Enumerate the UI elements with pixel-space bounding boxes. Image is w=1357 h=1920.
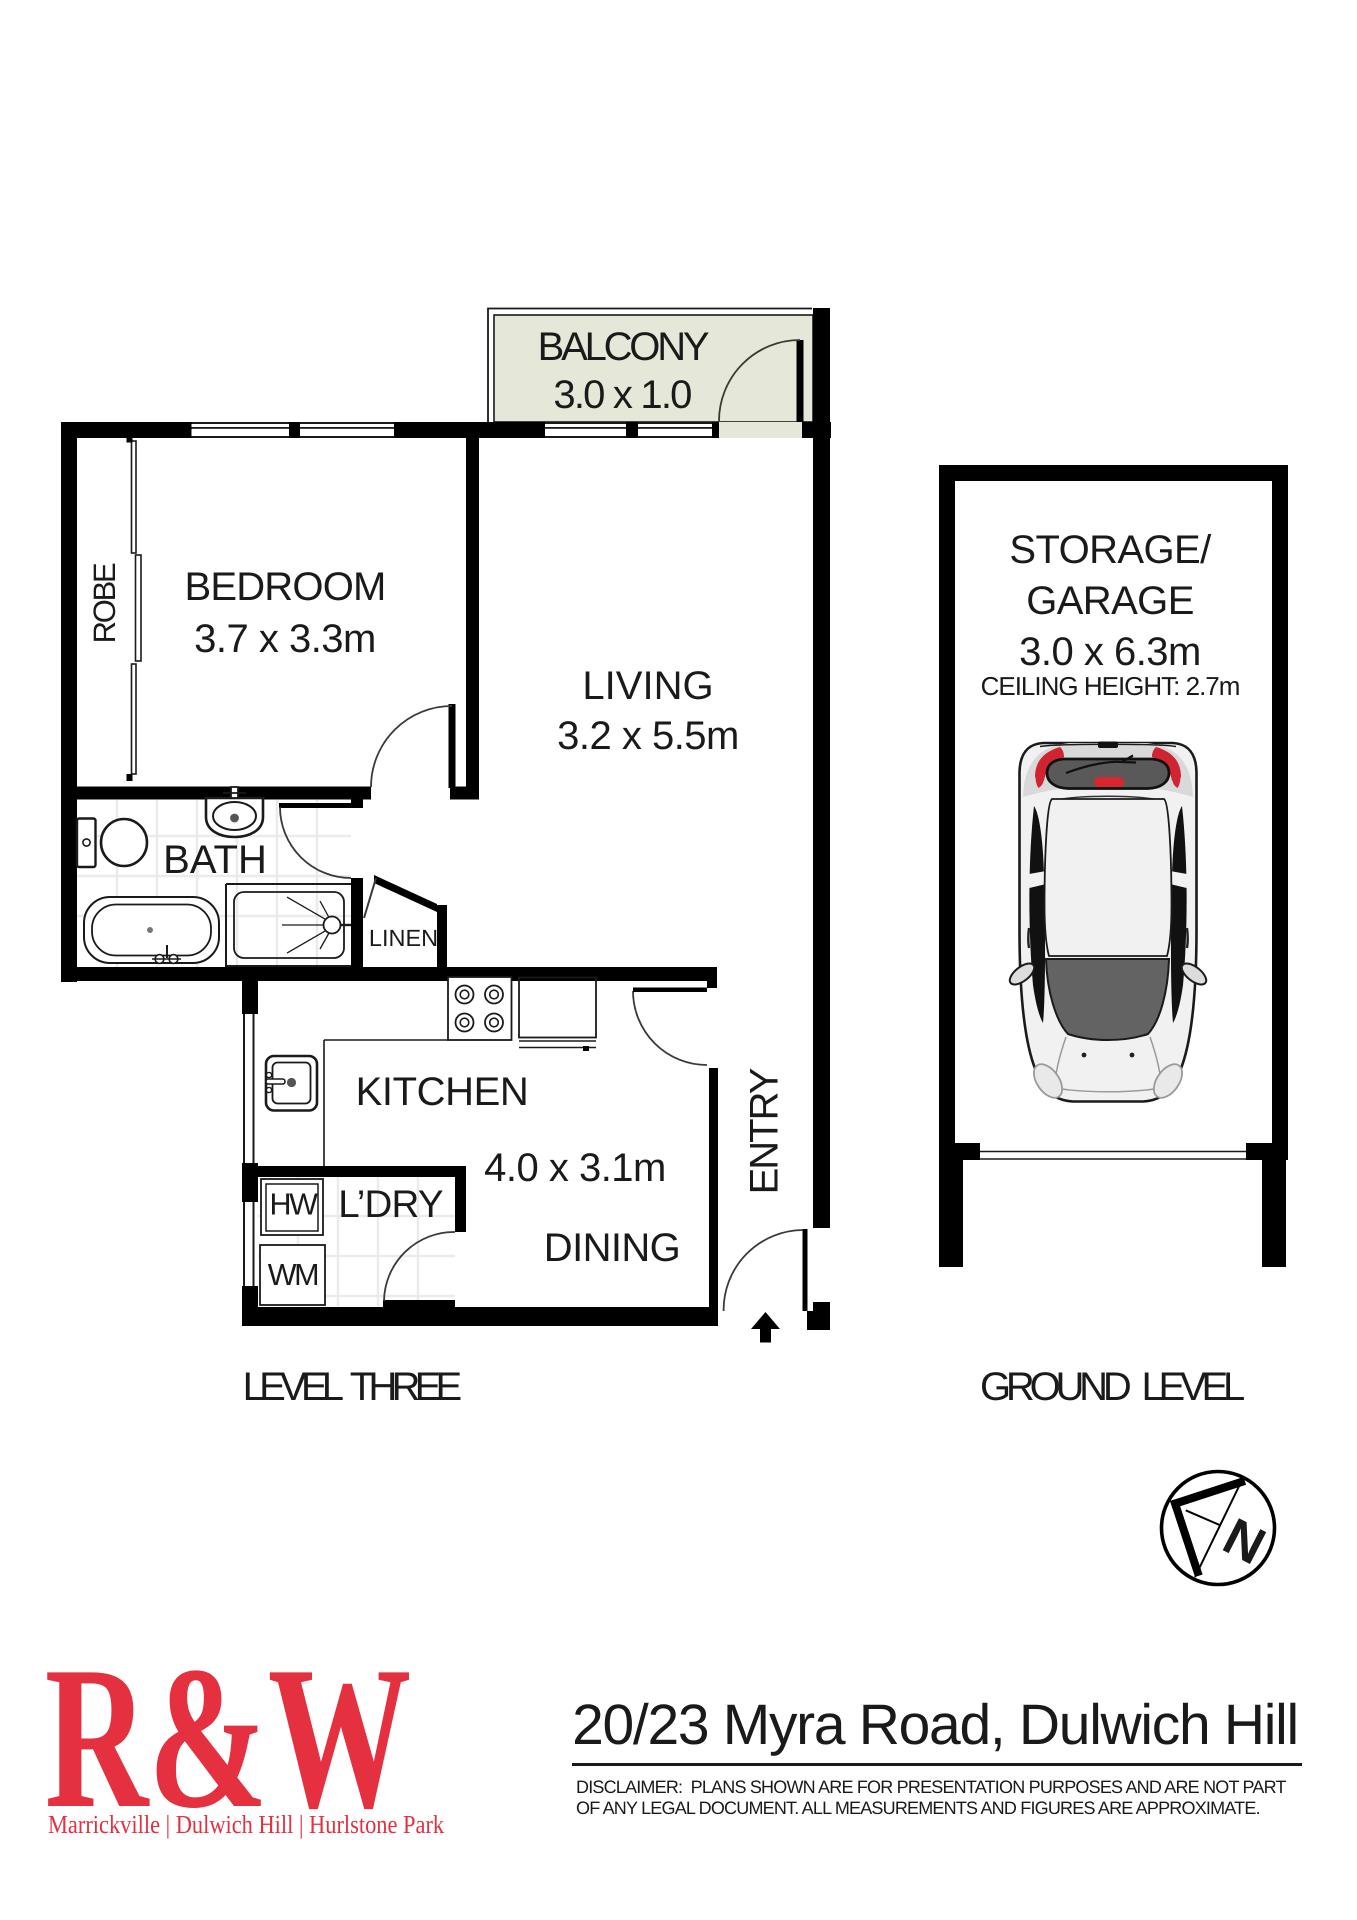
svg-text:WM: WM bbox=[268, 1258, 317, 1292]
svg-text:CEILING HEIGHT: 2.7m: CEILING HEIGHT: 2.7m bbox=[981, 671, 1240, 701]
svg-text:DISCLAIMER: PLANS SHOWN ARE F: DISCLAIMER: PLANS SHOWN ARE FOR PRESENTA… bbox=[576, 1777, 1286, 1797]
svg-text:Marrickville | Dulwich Hill |: Marrickville | Dulwich Hill | Hurlstone … bbox=[48, 1810, 444, 1839]
svg-text:STORAGE/: STORAGE/ bbox=[1009, 528, 1212, 572]
svg-text:BEDROOM: BEDROOM bbox=[184, 565, 385, 609]
svg-text:LINEN: LINEN bbox=[369, 925, 438, 951]
svg-text:3.0 x 1.0: 3.0 x 1.0 bbox=[553, 373, 691, 417]
svg-text:3.7 x 3.3m: 3.7 x 3.3m bbox=[194, 617, 376, 661]
svg-text:ENTRY: ENTRY bbox=[743, 1068, 787, 1194]
svg-text:4.0 x 3.1m: 4.0 x 3.1m bbox=[484, 1146, 666, 1190]
svg-text:BALCONY: BALCONY bbox=[538, 325, 709, 369]
svg-text:LEVEL THREE: LEVEL THREE bbox=[243, 1365, 461, 1409]
svg-text:DINING: DINING bbox=[544, 1226, 680, 1270]
svg-text:BATH: BATH bbox=[163, 838, 267, 882]
svg-text:20/23 Myra Road, Dulwich Hill: 20/23 Myra Road, Dulwich Hill bbox=[572, 1693, 1298, 1757]
svg-text:3.2 x 5.5m: 3.2 x 5.5m bbox=[557, 714, 739, 758]
svg-text:L’DRY: L’DRY bbox=[338, 1183, 443, 1226]
svg-text:LIVING: LIVING bbox=[582, 664, 713, 708]
svg-text:ROBE: ROBE bbox=[87, 563, 122, 643]
svg-text:3.0 x 6.3m: 3.0 x 6.3m bbox=[1019, 630, 1201, 674]
svg-text:GROUND LEVEL: GROUND LEVEL bbox=[980, 1365, 1244, 1409]
svg-text:HW: HW bbox=[269, 1188, 318, 1222]
svg-text:GARAGE: GARAGE bbox=[1026, 579, 1194, 623]
svg-text:KITCHEN: KITCHEN bbox=[356, 1070, 529, 1114]
svg-text:OF ANY LEGAL DOCUMENT. ALL MEA: OF ANY LEGAL DOCUMENT. ALL MEASUREMENTS … bbox=[576, 1798, 1260, 1818]
